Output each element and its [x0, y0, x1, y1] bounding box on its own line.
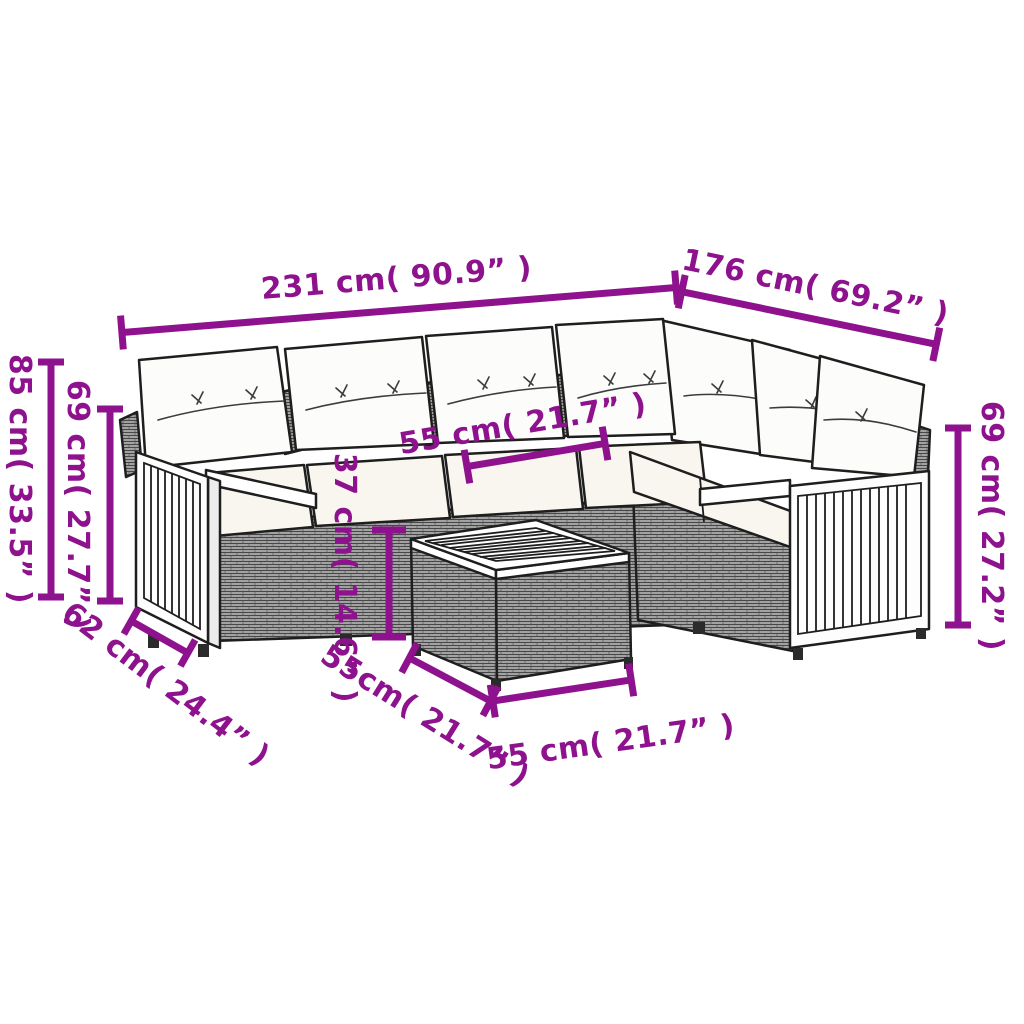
dimension-line [945, 428, 971, 625]
left-panel-slats [151, 466, 193, 625]
dimension-line [97, 409, 123, 601]
diagram-canvas: 231 cm( 90.9” ) 176 cm( 69.2” ) 85 cm( 3… [0, 0, 1024, 1024]
furniture-dimension-diagram: 231 cm( 90.9” ) 176 cm( 69.2” ) 85 cm( 3… [0, 0, 1024, 1024]
right-panel-frame [790, 471, 929, 648]
dimension-label-right-arm-height: 69 cm( 27.2” ) [974, 401, 1009, 651]
dimension-right-arm-height: 69 cm( 27.2” ) [945, 401, 1009, 651]
dimension-back-height: 85 cm( 33.5” ) [2, 354, 64, 604]
coffee-table-illustration [411, 520, 633, 691]
dimension-table-front: 55 cm( 21.7” ) [484, 664, 737, 778]
dimension-label-left-arm-height: 69 cm( 27.7” ) [60, 380, 95, 630]
dimension-left-arm-height: 69 cm( 27.7” ) [60, 380, 123, 630]
dimension-label-sofa-length: 231 cm( 90.9” ) [260, 250, 534, 307]
dimension-label-table-front: 55 cm( 21.7” ) [484, 708, 737, 777]
back-pillow [812, 356, 924, 477]
dimension-label-back-height: 85 cm( 33.5” ) [2, 354, 37, 604]
